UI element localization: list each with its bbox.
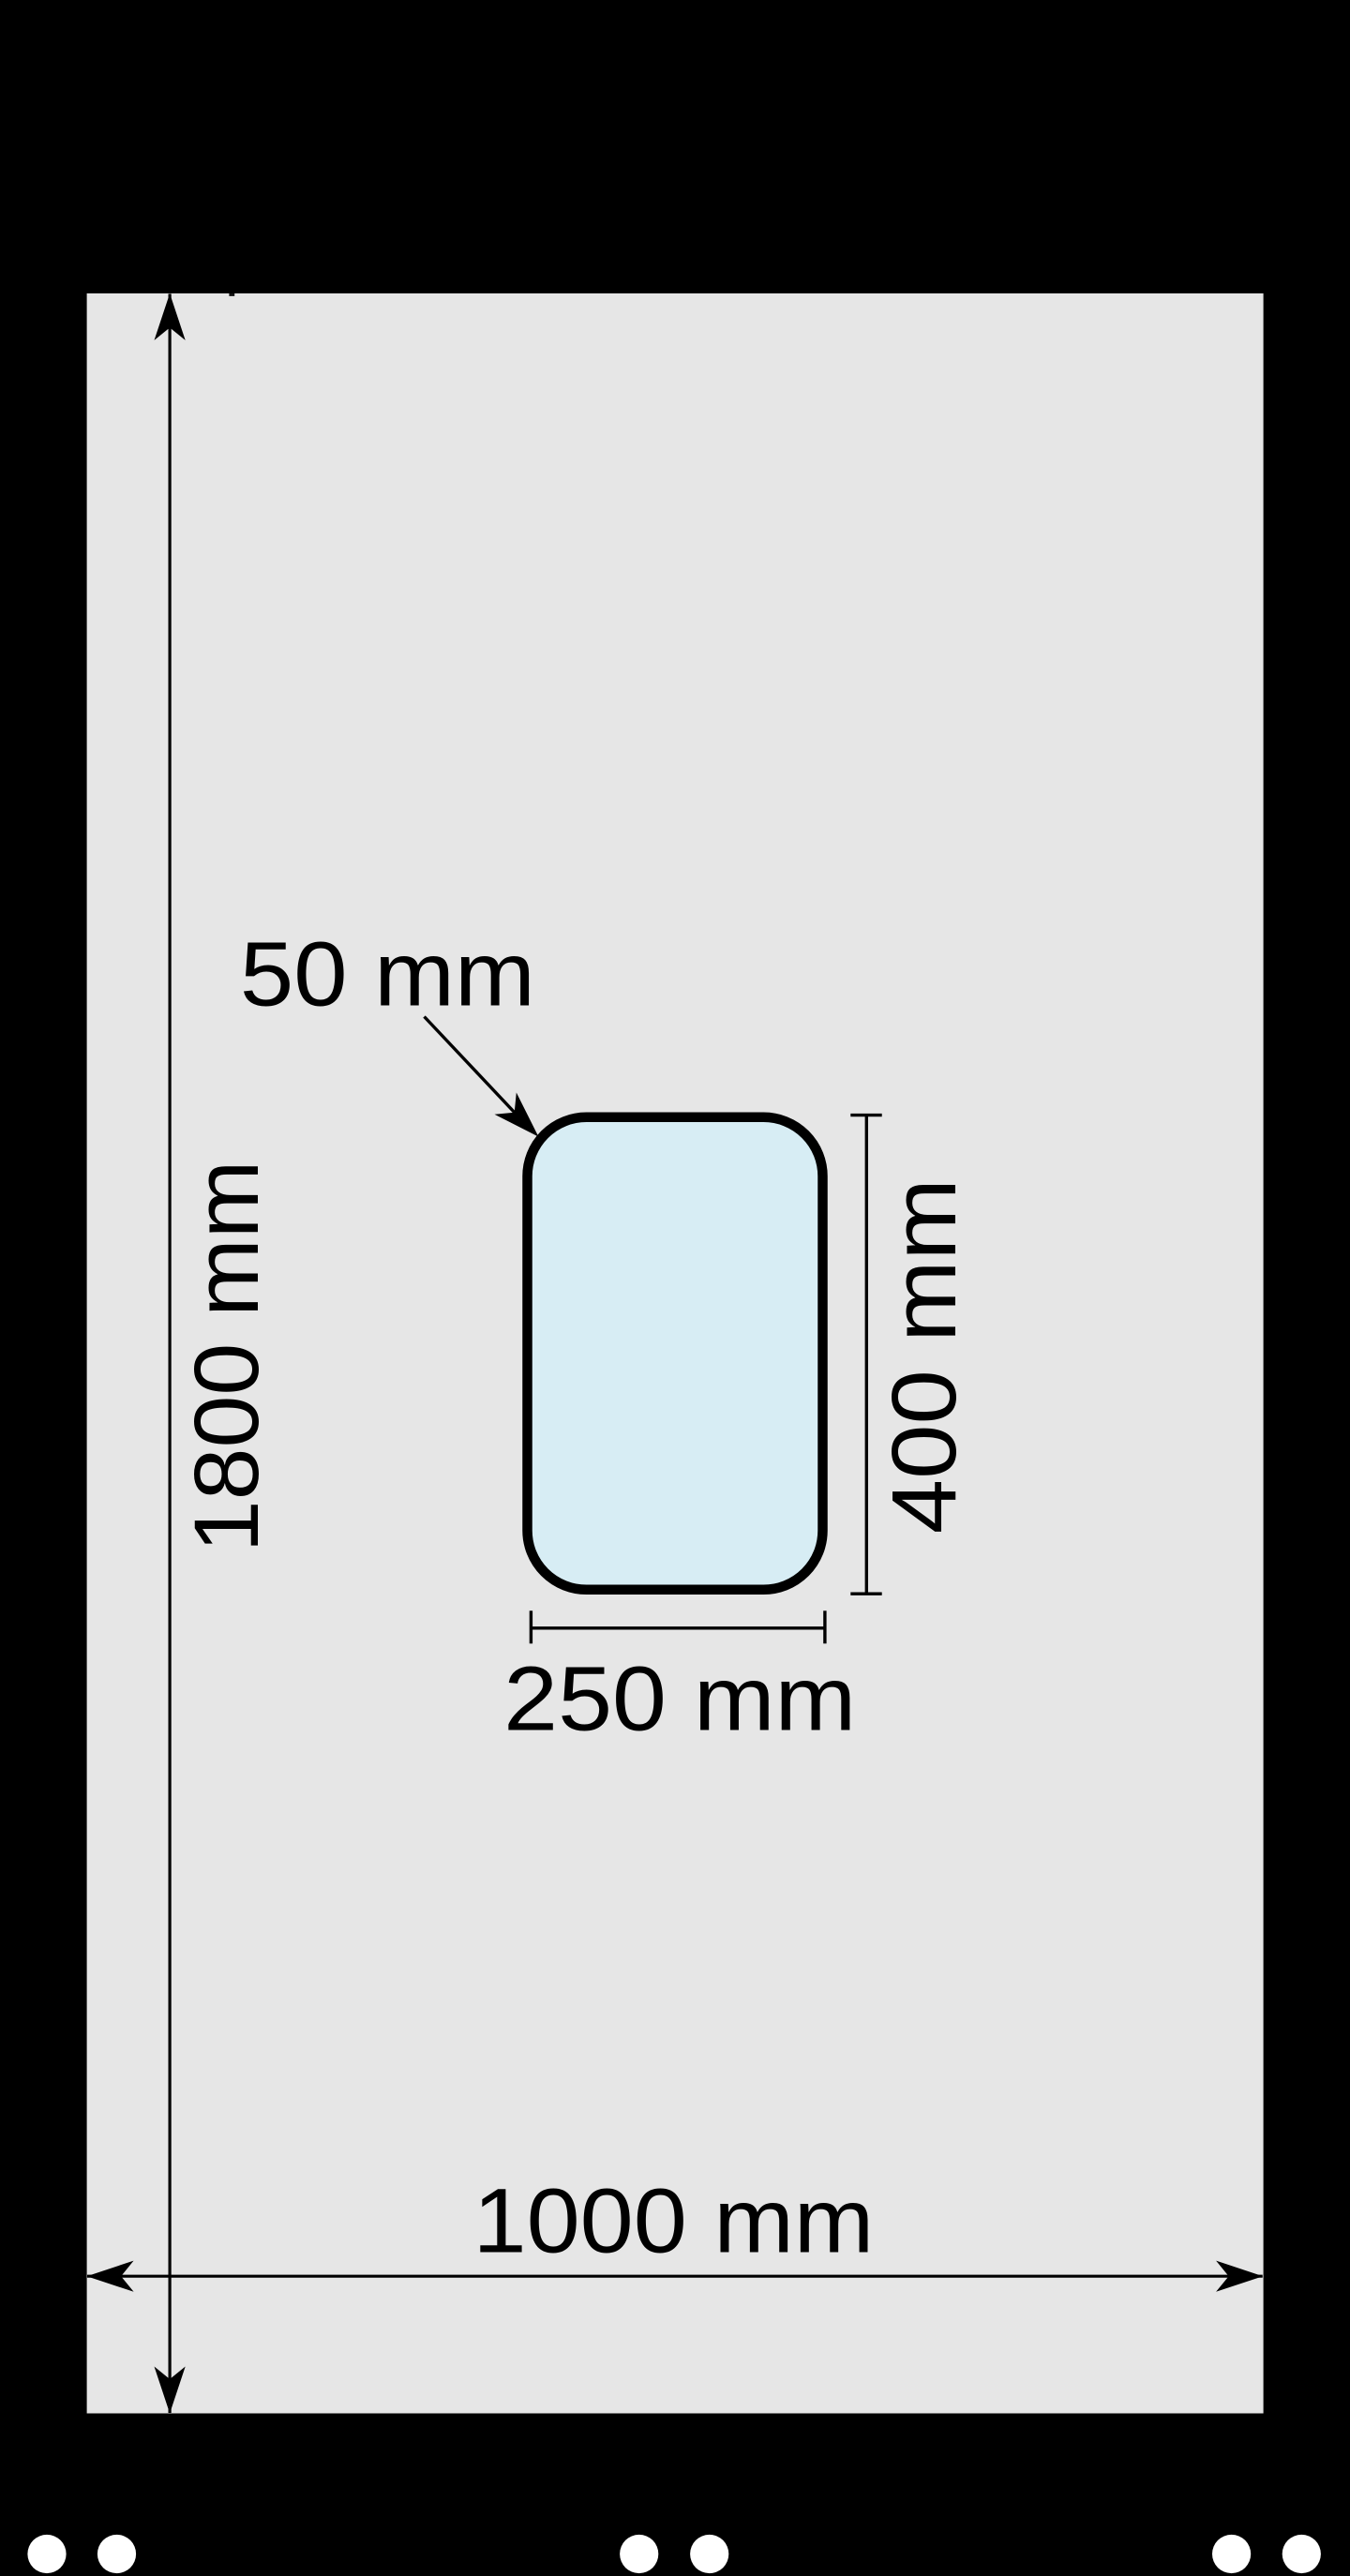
svg-text:250 mm: 250 mm [503, 1648, 856, 1750]
svg-text:50 mm: 50 mm [240, 923, 535, 1026]
svg-text:1000 mm: 1000 mm [473, 2170, 875, 2272]
svg-text:1800 mm: 1800 mm [175, 1161, 277, 1553]
svg-text:400 mm: 400 mm [873, 1178, 975, 1534]
